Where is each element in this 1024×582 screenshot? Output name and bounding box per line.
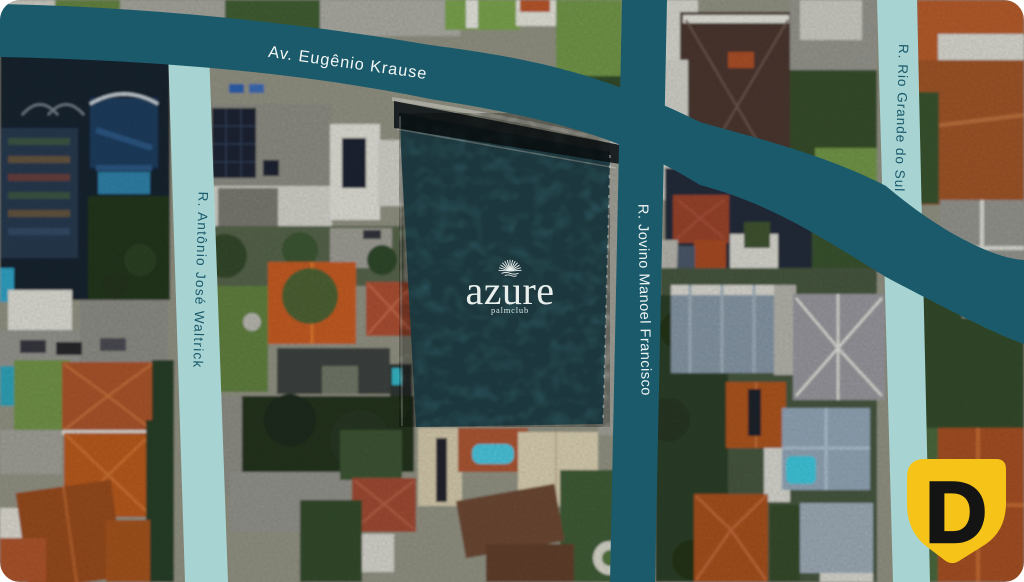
svg-text:D: D <box>925 465 987 561</box>
svg-text:palmclub: palmclub <box>491 305 529 315</box>
svg-text:R. Jovino Manoel Francisco: R. Jovino Manoel Francisco <box>634 204 653 396</box>
